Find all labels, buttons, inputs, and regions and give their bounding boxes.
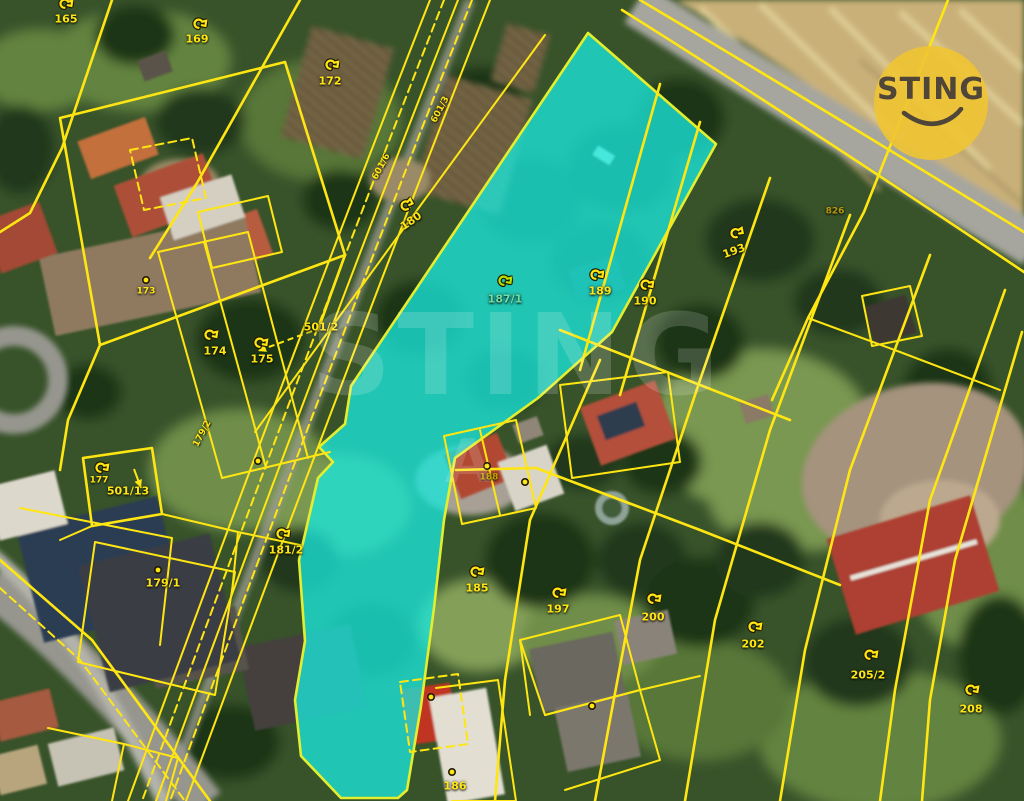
watermark-text: STING — [311, 291, 725, 421]
sting-logo: STING — [874, 46, 988, 160]
watermark-secondary-text: A — [445, 427, 491, 497]
sting-logo-text: STING — [877, 72, 985, 107]
smile-icon — [895, 107, 967, 135]
map-stage: 165169172180601/6601/3173174175501/21775… — [0, 0, 1024, 801]
